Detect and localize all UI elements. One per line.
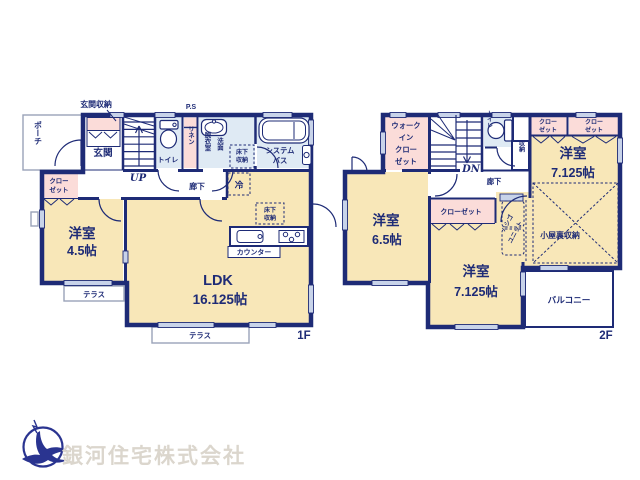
stairs-1f xyxy=(124,117,154,166)
closet-2f-a-label-l2: ゼット xyxy=(539,126,557,134)
toilet-fixture-1f xyxy=(160,121,178,149)
company-name: 銀河住宅株式会社 xyxy=(61,444,246,468)
closet-2f-a-label-l1: クロー xyxy=(539,118,557,126)
closet-1f-label-l2: ゼット xyxy=(49,185,68,194)
underfloor2-label-l1: 床下 xyxy=(264,206,276,214)
terrace2-label: テラス xyxy=(189,331,211,340)
underfloor1-label-l1: 床下 xyxy=(236,148,248,156)
dn-label: DN xyxy=(461,164,481,175)
floor2-label: 2F xyxy=(599,330,612,342)
wic-label-l2: イン xyxy=(399,133,414,142)
dressing-room-label: 脱衣室 xyxy=(204,130,211,152)
washstand-label: 洗面 xyxy=(216,136,223,151)
porch-label: ポーチ xyxy=(33,120,42,145)
terrace1-label: テラス xyxy=(83,290,105,299)
company-logo: 銀河住宅株式会社 xyxy=(22,420,246,468)
hallway-2f-label: 廊下 xyxy=(487,177,502,186)
system-bath-label-l1: システム xyxy=(266,146,295,155)
stairs-2f xyxy=(430,115,481,170)
toilet-fixture-2f xyxy=(488,120,512,141)
wic-label-l4: ゼット xyxy=(395,157,417,166)
room-l-name: 洋室 xyxy=(373,212,400,228)
room-bm-size: 7.125帖 xyxy=(454,284,498,299)
room-yoshitsu45 xyxy=(42,199,123,283)
floorplan-page: 玄関収納 P.S ポーチ 玄関 UP トイレ リネン 脱衣室 洗面 床下 収納 … xyxy=(0,0,640,480)
counter-label: カウンター xyxy=(237,248,272,257)
underfloor1-label-l2: 収納 xyxy=(236,156,248,164)
floor2-plan: ウォーク イン クロー ゼット DN トイレ 収納 クロー ゼット クロー ゼッ… xyxy=(343,110,623,342)
room-tr-name: 洋室 xyxy=(560,145,588,161)
hallway-1f-label: 廊下 xyxy=(189,181,205,191)
up-label: UP xyxy=(130,173,147,184)
room-bm-name: 洋室 xyxy=(463,263,490,279)
closet-2f-b-label-l1: クロー xyxy=(585,118,603,126)
room45-name: 洋室 xyxy=(69,225,96,241)
closet-1f-label-l1: クロー xyxy=(49,176,68,185)
toilet-2f-label: トイレ xyxy=(486,110,493,128)
linen-label: リネン xyxy=(187,125,194,145)
ldk-size: 16.125帖 xyxy=(193,291,248,307)
wic-label-l3: クロー xyxy=(395,145,417,154)
floorplan-canvas: 玄関収納 P.S ポーチ 玄関 UP トイレ リネン 脱衣室 洗面 床下 収納 … xyxy=(0,0,640,480)
porch-outline xyxy=(23,115,82,170)
system-bath-label-l2: バス xyxy=(273,156,288,165)
floor1-label: 1F xyxy=(297,330,310,342)
floor1-plan: 玄関収納 P.S ポーチ 玄関 UP トイレ リネン 脱衣室 洗面 床下 収納 … xyxy=(23,99,336,343)
room45-size: 4.5帖 xyxy=(67,243,97,258)
underfloor2-label-l2: 収納 xyxy=(264,214,276,222)
room-tr-size: 7.125帖 xyxy=(551,165,595,180)
attic-storage-label: 小屋裏収納 xyxy=(540,230,580,240)
room-l-size: 6.5帖 xyxy=(372,232,402,247)
entrance-storage-label: 玄関収納 xyxy=(80,99,112,109)
toilet-1f-label: トイレ xyxy=(158,156,179,164)
ldk-name: LDK xyxy=(203,273,233,289)
closet-2f-mid-label: クローゼット xyxy=(440,207,481,216)
closet-2f-b-label-l2: ゼット xyxy=(585,126,603,134)
entrance-label: 玄関 xyxy=(93,147,112,159)
fridge-label: 冷 xyxy=(235,179,244,190)
ps-label: P.S xyxy=(186,104,197,111)
balcony-label: バルコニー xyxy=(548,295,591,305)
wic-label-l1: ウォーク xyxy=(391,121,420,130)
closet-1f xyxy=(41,172,78,198)
